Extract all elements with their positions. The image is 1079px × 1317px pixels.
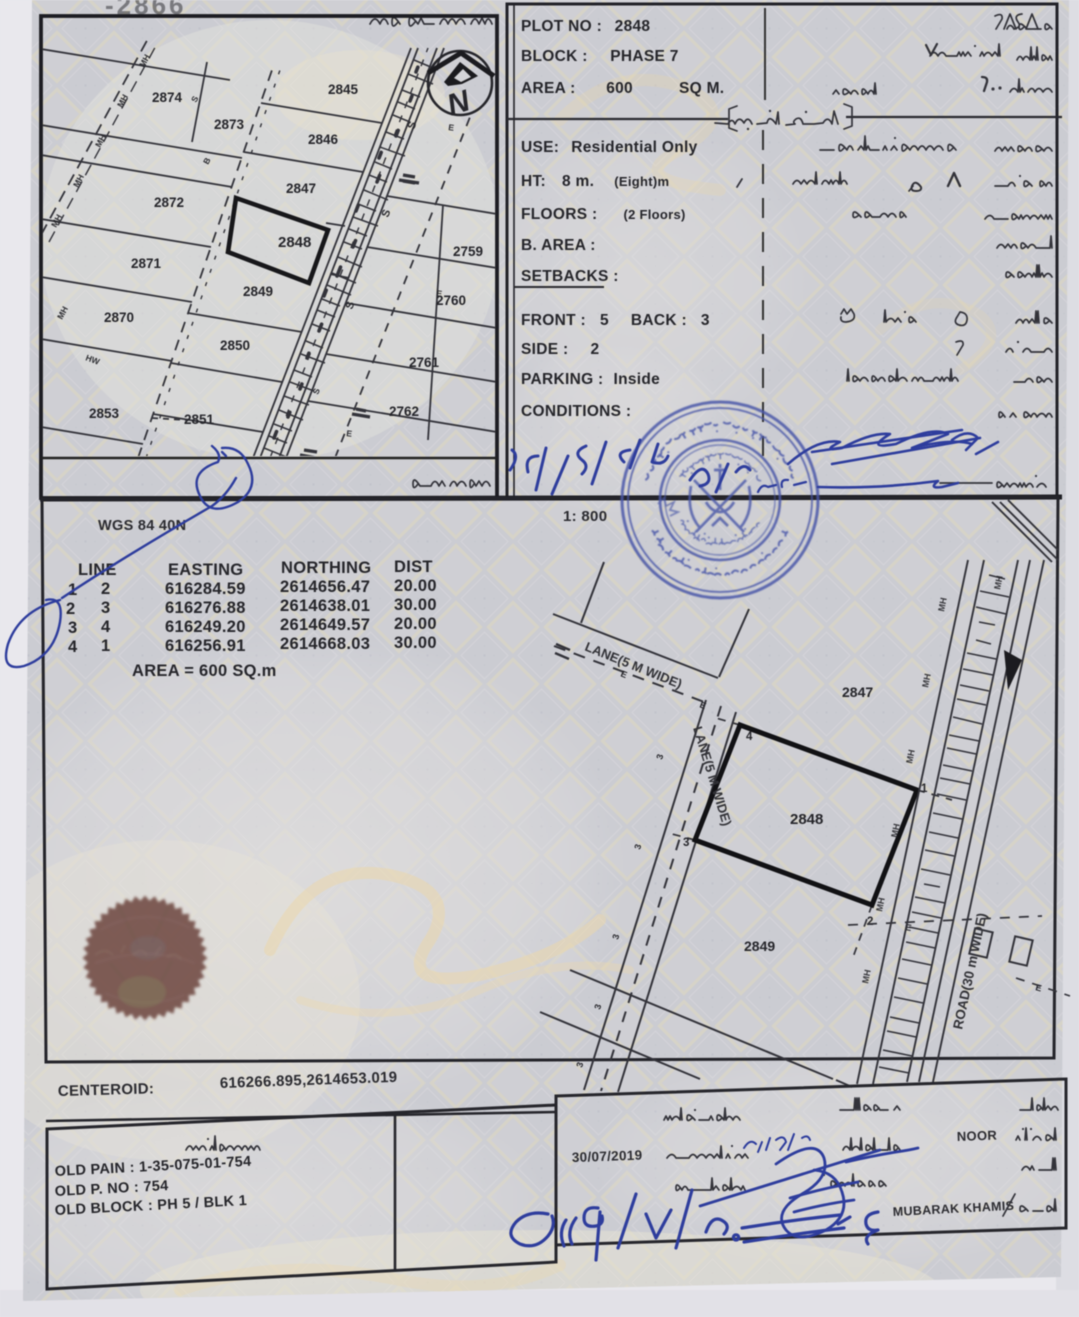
svg-text:30.00: 30.00: [394, 596, 437, 614]
svg-text:4: 4: [101, 618, 111, 636]
svg-text:WGS 84 40N: WGS 84 40N: [98, 518, 186, 534]
svg-text:EASTING: EASTING: [168, 561, 243, 579]
svg-text:1: 1: [921, 783, 928, 795]
svg-text:CONDITIONS :: CONDITIONS :: [521, 403, 631, 420]
svg-text:2614668.03: 2614668.03: [280, 635, 370, 653]
svg-text:AREA : 600SQ M.: AREA : 600SQ M.: [521, 80, 724, 97]
svg-text:1: 1: [101, 637, 110, 655]
svg-text:2614638.01: 2614638.01: [280, 597, 370, 615]
svg-text:2760: 2760: [436, 293, 466, 308]
svg-text:2872: 2872: [154, 195, 184, 210]
svg-text:30.00: 30.00: [394, 634, 437, 652]
svg-text:3: 3: [68, 619, 77, 637]
svg-text:2850: 2850: [220, 338, 250, 353]
svg-text:2759: 2759: [453, 244, 483, 259]
svg-text:PLOT NO : 2848: PLOT NO : 2848: [521, 18, 650, 35]
svg-text:B. AREA :: B. AREA :: [521, 237, 596, 254]
svg-text:20.00: 20.00: [394, 615, 437, 633]
svg-text:2: 2: [101, 580, 110, 598]
svg-text:AREA = 600 SQ.m: AREA = 600 SQ.m: [132, 662, 277, 680]
svg-text:4: 4: [68, 638, 78, 656]
svg-text:2873: 2873: [214, 117, 245, 132]
svg-text:SETBACKS :: SETBACKS :: [521, 268, 619, 285]
svg-text:2846: 2846: [308, 132, 339, 147]
svg-text:2849: 2849: [744, 938, 775, 954]
svg-text:2848: 2848: [278, 234, 311, 251]
svg-text:616276.88: 616276.88: [165, 599, 246, 617]
svg-text:1: 800: 1: 800: [563, 508, 607, 525]
svg-text:2762: 2762: [389, 404, 419, 419]
svg-text:2853: 2853: [89, 406, 120, 421]
svg-text:2874: 2874: [152, 90, 183, 105]
svg-text:3: 3: [683, 837, 689, 849]
svg-text:2871: 2871: [131, 256, 162, 271]
svg-text:2614649.57: 2614649.57: [280, 616, 370, 634]
svg-text:2: 2: [867, 916, 873, 928]
svg-text:616284.59: 616284.59: [165, 580, 246, 598]
svg-text:616249.20: 616249.20: [165, 618, 246, 636]
svg-text:2851: 2851: [184, 412, 215, 427]
svg-text:20.00: 20.00: [394, 577, 437, 595]
svg-text:616256.91: 616256.91: [165, 637, 246, 655]
svg-text:2847: 2847: [842, 684, 873, 700]
svg-text:2870: 2870: [104, 310, 134, 325]
svg-text:2845: 2845: [328, 82, 359, 97]
svg-text:3: 3: [101, 599, 110, 617]
svg-text:2849: 2849: [243, 284, 273, 299]
svg-text:NOOR: NOOR: [957, 1128, 998, 1144]
svg-text:PARKING :Inside: PARKING :Inside: [521, 371, 660, 388]
svg-text:USE:Residential Only: USE:Residential Only: [521, 139, 698, 156]
svg-text:2848: 2848: [790, 811, 823, 828]
svg-text:30/07/2019: 30/07/2019: [572, 1148, 643, 1165]
svg-text:2847: 2847: [286, 181, 316, 196]
svg-text:NORTHING: NORTHING: [281, 559, 371, 577]
svg-text:2: 2: [66, 600, 75, 618]
svg-text:2614656.47: 2614656.47: [280, 578, 370, 596]
svg-text:2761: 2761: [409, 355, 440, 370]
svg-text:DIST: DIST: [394, 558, 433, 576]
svg-text:4: 4: [746, 731, 753, 743]
svg-text:CENTEROID:: CENTEROID:: [58, 1080, 155, 1100]
